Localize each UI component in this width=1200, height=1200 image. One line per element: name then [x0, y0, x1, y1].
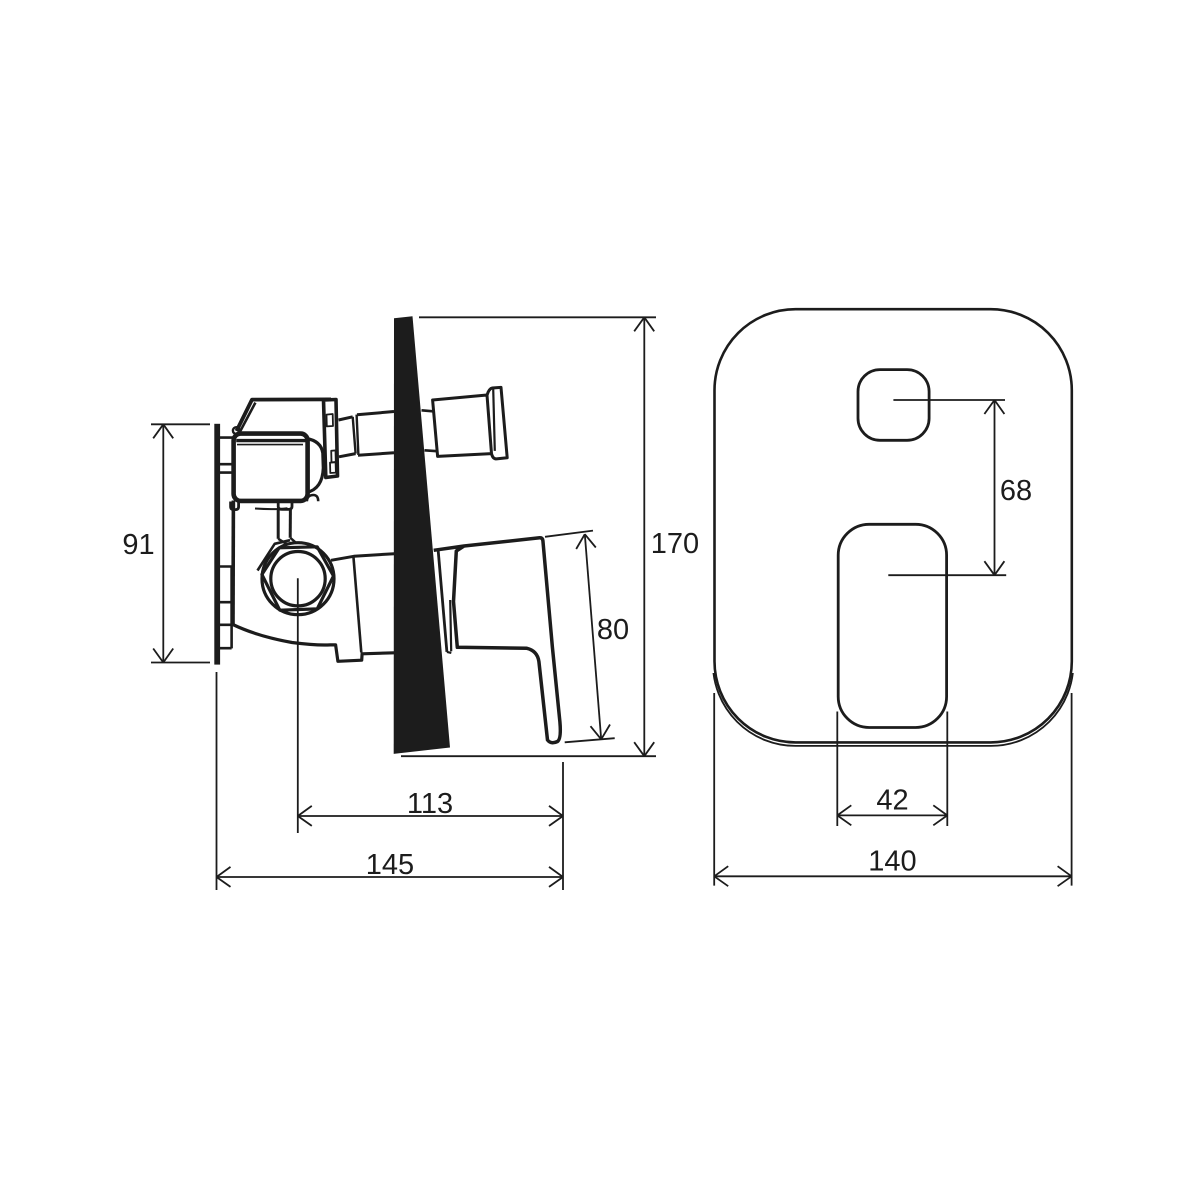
svg-text:140: 140 [868, 846, 916, 878]
svg-text:145: 145 [366, 849, 414, 881]
svg-text:113: 113 [407, 788, 453, 820]
svg-text:91: 91 [122, 529, 154, 561]
svg-text:170: 170 [651, 528, 699, 560]
svg-text:80: 80 [597, 614, 629, 646]
svg-text:68: 68 [1000, 475, 1032, 507]
svg-text:42: 42 [876, 785, 908, 817]
